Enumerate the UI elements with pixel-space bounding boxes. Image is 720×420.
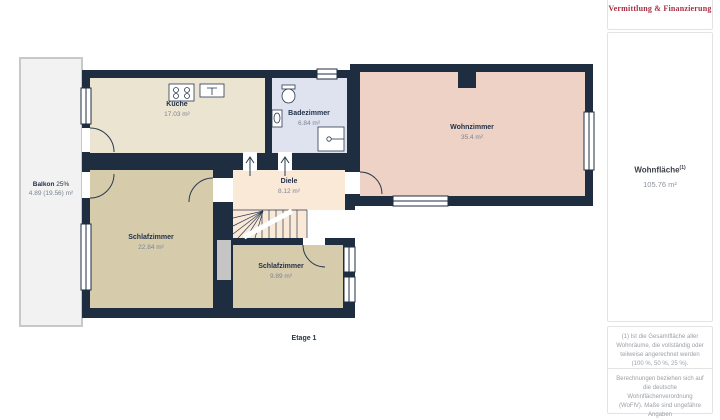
- living-area-value: 105.76 m²: [643, 180, 677, 189]
- room-label-schlafzimmer-1: Schlafzimmer 22.84 m²: [128, 233, 174, 252]
- balcony-label: Balkon 25% 4.89 (19.56) m²: [16, 180, 86, 198]
- room-label-kueche: Küche 17.03 m²: [164, 100, 190, 119]
- footnote-box-2: Berechnungen beziehen sich auf die deuts…: [607, 368, 713, 414]
- brand-text: Vermittlung & Finanzierung: [608, 4, 711, 13]
- exterior-notch: [307, 210, 355, 238]
- room-label-diele: Diele 8.12 m²: [278, 177, 300, 196]
- living-area-label: Wohnfläche(1): [634, 165, 685, 175]
- living-area-box: Wohnfläche(1) 105.76 m²: [607, 32, 713, 322]
- kitchen-sink-icon: [200, 84, 224, 97]
- floorplan-page: Küche 17.03 m² Badezimmer 6.84 m² Wohnzi…: [0, 0, 720, 405]
- floor-caption: Etage 1: [292, 335, 317, 342]
- room-label-wohnzimmer: Wohnzimmer 35.4 m²: [450, 123, 494, 142]
- shower-icon: [318, 127, 344, 151]
- room-label-schlafzimmer-2: Schlafzimmer 9.89 m²: [258, 262, 304, 281]
- shaft: [217, 240, 231, 280]
- toilet-icon: [282, 85, 295, 103]
- chimney: [458, 64, 476, 88]
- brand-box: Vermittlung & Finanzierung: [607, 0, 713, 30]
- stove-icon: [169, 84, 194, 101]
- room-label-badezimmer: Badezimmer 6.84 m²: [288, 109, 330, 128]
- bath-sink-icon: [272, 110, 282, 127]
